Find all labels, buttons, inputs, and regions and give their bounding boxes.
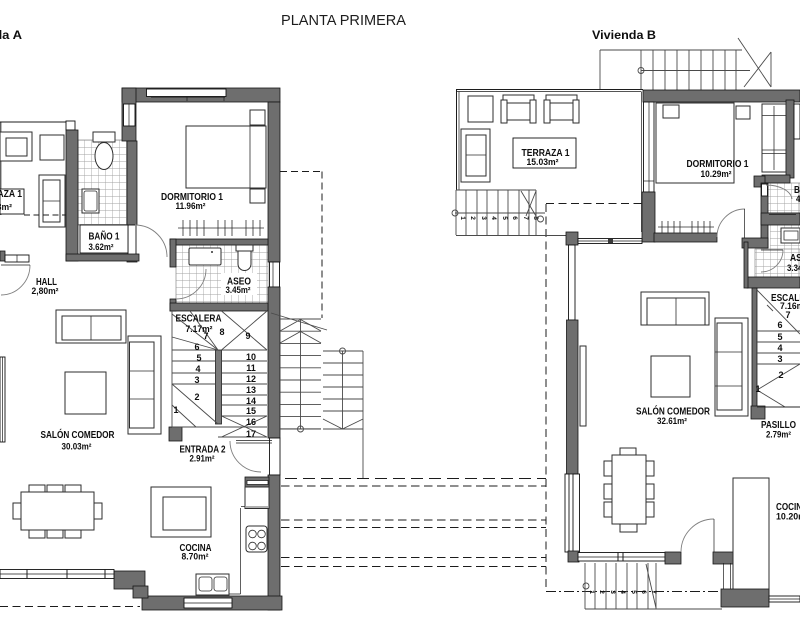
svg-text:4: 4	[619, 590, 626, 594]
svg-text:2: 2	[598, 590, 605, 594]
svg-text:5: 5	[501, 216, 508, 220]
svg-text:1: 1	[173, 405, 178, 415]
svg-text:2,80m²: 2,80m²	[32, 286, 59, 296]
svg-text:7: 7	[785, 310, 790, 320]
svg-text:1: 1	[588, 590, 595, 594]
svg-text:TERRAZA 1: TERRAZA 1	[0, 189, 22, 200]
svg-text:7: 7	[203, 331, 208, 341]
svg-text:SALÓN COMEDOR: SALÓN COMEDOR	[41, 428, 116, 441]
svg-text:Vivienda A: Vivienda A	[0, 28, 22, 42]
svg-text:3: 3	[194, 375, 199, 385]
svg-text:5: 5	[630, 590, 637, 594]
svg-text:3.62m²: 3.62m²	[89, 242, 114, 252]
svg-text:2.79m²: 2.79m²	[766, 430, 791, 440]
svg-text:2: 2	[194, 392, 199, 402]
svg-text:1: 1	[459, 216, 466, 220]
svg-text:15: 15	[246, 406, 256, 416]
svg-text:BAÑO 1: BAÑO 1	[89, 230, 120, 243]
svg-text:2: 2	[469, 216, 476, 220]
svg-text:11.96m²: 11.96m²	[176, 201, 206, 211]
svg-text:15.03m²: 15.03m²	[0, 202, 12, 212]
svg-text:13: 13	[246, 385, 256, 395]
svg-text:32.61m²: 32.61m²	[657, 416, 687, 426]
svg-text:3.45m²: 3.45m²	[226, 285, 251, 295]
svg-text:12: 12	[246, 374, 256, 384]
svg-text:3: 3	[777, 354, 782, 364]
svg-text:2.91m²: 2.91m²	[190, 454, 215, 464]
svg-text:5: 5	[196, 353, 201, 363]
svg-text:8: 8	[219, 327, 224, 337]
svg-text:6: 6	[777, 320, 782, 330]
svg-text:17: 17	[246, 429, 256, 439]
svg-text:1: 1	[755, 384, 760, 394]
svg-text:30.03m²: 30.03m²	[62, 442, 92, 452]
svg-text:9: 9	[245, 331, 250, 341]
svg-text:10: 10	[246, 352, 256, 362]
svg-text:6: 6	[511, 216, 518, 220]
svg-text:3.34m²: 3.34m²	[787, 263, 800, 273]
svg-text:10.20m²: 10.20m²	[776, 512, 800, 522]
svg-text:10.29m²: 10.29m²	[701, 169, 732, 179]
svg-text:14: 14	[246, 396, 256, 406]
svg-text:11: 11	[246, 363, 256, 373]
svg-text:8.70m²: 8.70m²	[182, 552, 209, 562]
svg-text:6: 6	[640, 590, 647, 594]
svg-text:2: 2	[778, 370, 783, 380]
svg-text:3: 3	[480, 216, 487, 220]
svg-text:5: 5	[777, 332, 782, 342]
svg-text:4.11m²: 4.11m²	[796, 194, 800, 204]
svg-text:4: 4	[777, 343, 782, 353]
svg-text:4: 4	[195, 364, 200, 374]
svg-text:6: 6	[194, 342, 199, 352]
svg-text:PLANTA PRIMERA: PLANTA PRIMERA	[281, 12, 406, 29]
svg-text:15.03m²: 15.03m²	[527, 157, 559, 167]
svg-text:4: 4	[490, 216, 497, 220]
svg-text:7: 7	[650, 590, 657, 594]
svg-text:16: 16	[246, 417, 256, 427]
svg-text:7: 7	[522, 216, 529, 220]
svg-text:ESCALERA: ESCALERA	[176, 314, 223, 325]
svg-text:Vivienda B: Vivienda B	[592, 28, 656, 42]
svg-text:8: 8	[532, 216, 539, 220]
svg-text:3: 3	[609, 590, 616, 594]
